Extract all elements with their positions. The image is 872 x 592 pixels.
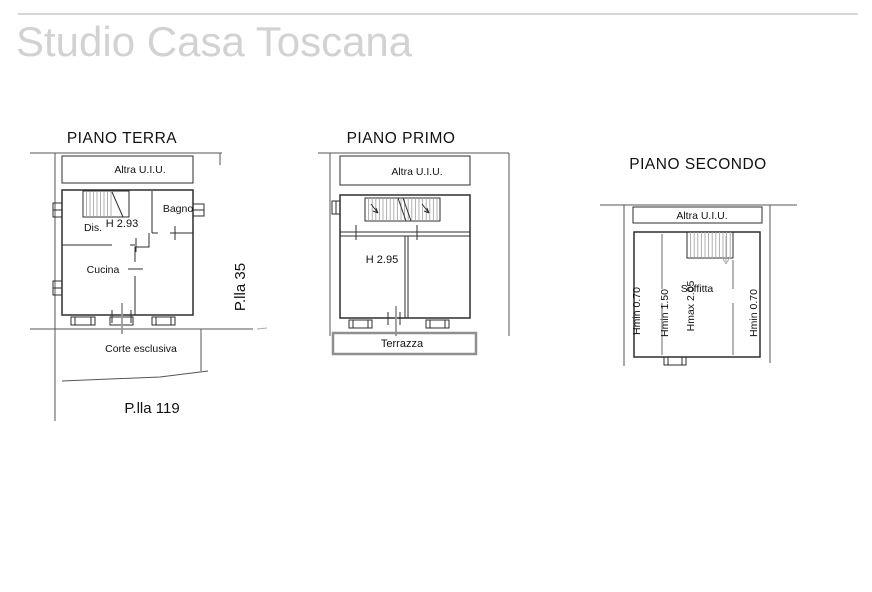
terrazza-label: Terrazza <box>381 338 424 350</box>
primo-altra-uiu-unit: Altra U.I.U. <box>340 156 470 185</box>
hmin-center-label: Hmin 1.50 <box>659 289 671 337</box>
window <box>193 204 204 216</box>
hmin-right-label: Hmin 0.70 <box>748 289 760 337</box>
hmax-center-label: Hmax 2.05 <box>685 280 697 331</box>
hmin-left-label: Hmin 0.70 <box>631 287 643 335</box>
floorplan-document: Studio Casa Toscana PIANO TERRA Altra U.… <box>0 0 872 592</box>
window <box>426 320 449 328</box>
watermark-logo: Studio Casa Toscana <box>16 18 413 65</box>
dis-label: Dis. <box>84 222 102 234</box>
window <box>349 320 372 328</box>
plan-secondo-title: PIANO SECONDO <box>629 156 766 173</box>
window <box>53 203 62 217</box>
terra-stairs <box>83 191 129 217</box>
terra-corte-esclusiva: Corte esclusiva <box>62 329 208 381</box>
window <box>53 281 62 295</box>
plan-piano-terra: PIANO TERRA Altra U.I.U. <box>30 130 267 421</box>
plan-piano-primo: PIANO PRIMO Altra U.I.U. <box>318 130 509 354</box>
plan-terra-title: PIANO TERRA <box>67 130 177 147</box>
corte-esclusiva-label: Corte esclusiva <box>105 343 177 355</box>
survey-dash <box>257 328 267 329</box>
primo-stairs <box>365 198 440 221</box>
secondo-altra-uiu-unit: Altra U.I.U. <box>633 207 762 223</box>
cucina-label: Cucina <box>87 264 120 276</box>
primo-boundary-lines <box>318 153 509 336</box>
letterhead: Studio Casa Toscana <box>16 14 858 65</box>
primo-interior-walls <box>340 225 470 318</box>
parcel-35-label: P.lla 35 <box>232 263 249 311</box>
secondo-stairs <box>687 232 733 264</box>
secondo-altra-uiu-label: Altra U.I.U. <box>676 210 727 222</box>
plan-primo-title: PIANO PRIMO <box>347 130 456 147</box>
primo-terrazza: Terrazza <box>333 333 476 354</box>
terra-bagno-walls <box>152 191 193 240</box>
window <box>332 201 340 214</box>
window <box>664 357 686 365</box>
floorplan-canvas: Studio Casa Toscana PIANO TERRA Altra U.… <box>0 0 872 592</box>
bagno-label: Bagno <box>163 203 194 215</box>
window <box>71 317 95 325</box>
primo-height-label: H 2.95 <box>366 254 398 266</box>
terra-altra-uiu-label: Altra U.I.U. <box>114 164 165 176</box>
parcel-119-label: P.lla 119 <box>124 400 179 417</box>
plan-piano-secondo: PIANO SECONDO Altra U.I.U. <box>600 156 797 366</box>
primo-altra-uiu-label: Altra U.I.U. <box>391 166 442 178</box>
window <box>152 317 175 325</box>
terra-altra-uiu-unit: Altra U.I.U. <box>62 156 193 183</box>
terra-height-label: H 2.93 <box>106 218 138 230</box>
